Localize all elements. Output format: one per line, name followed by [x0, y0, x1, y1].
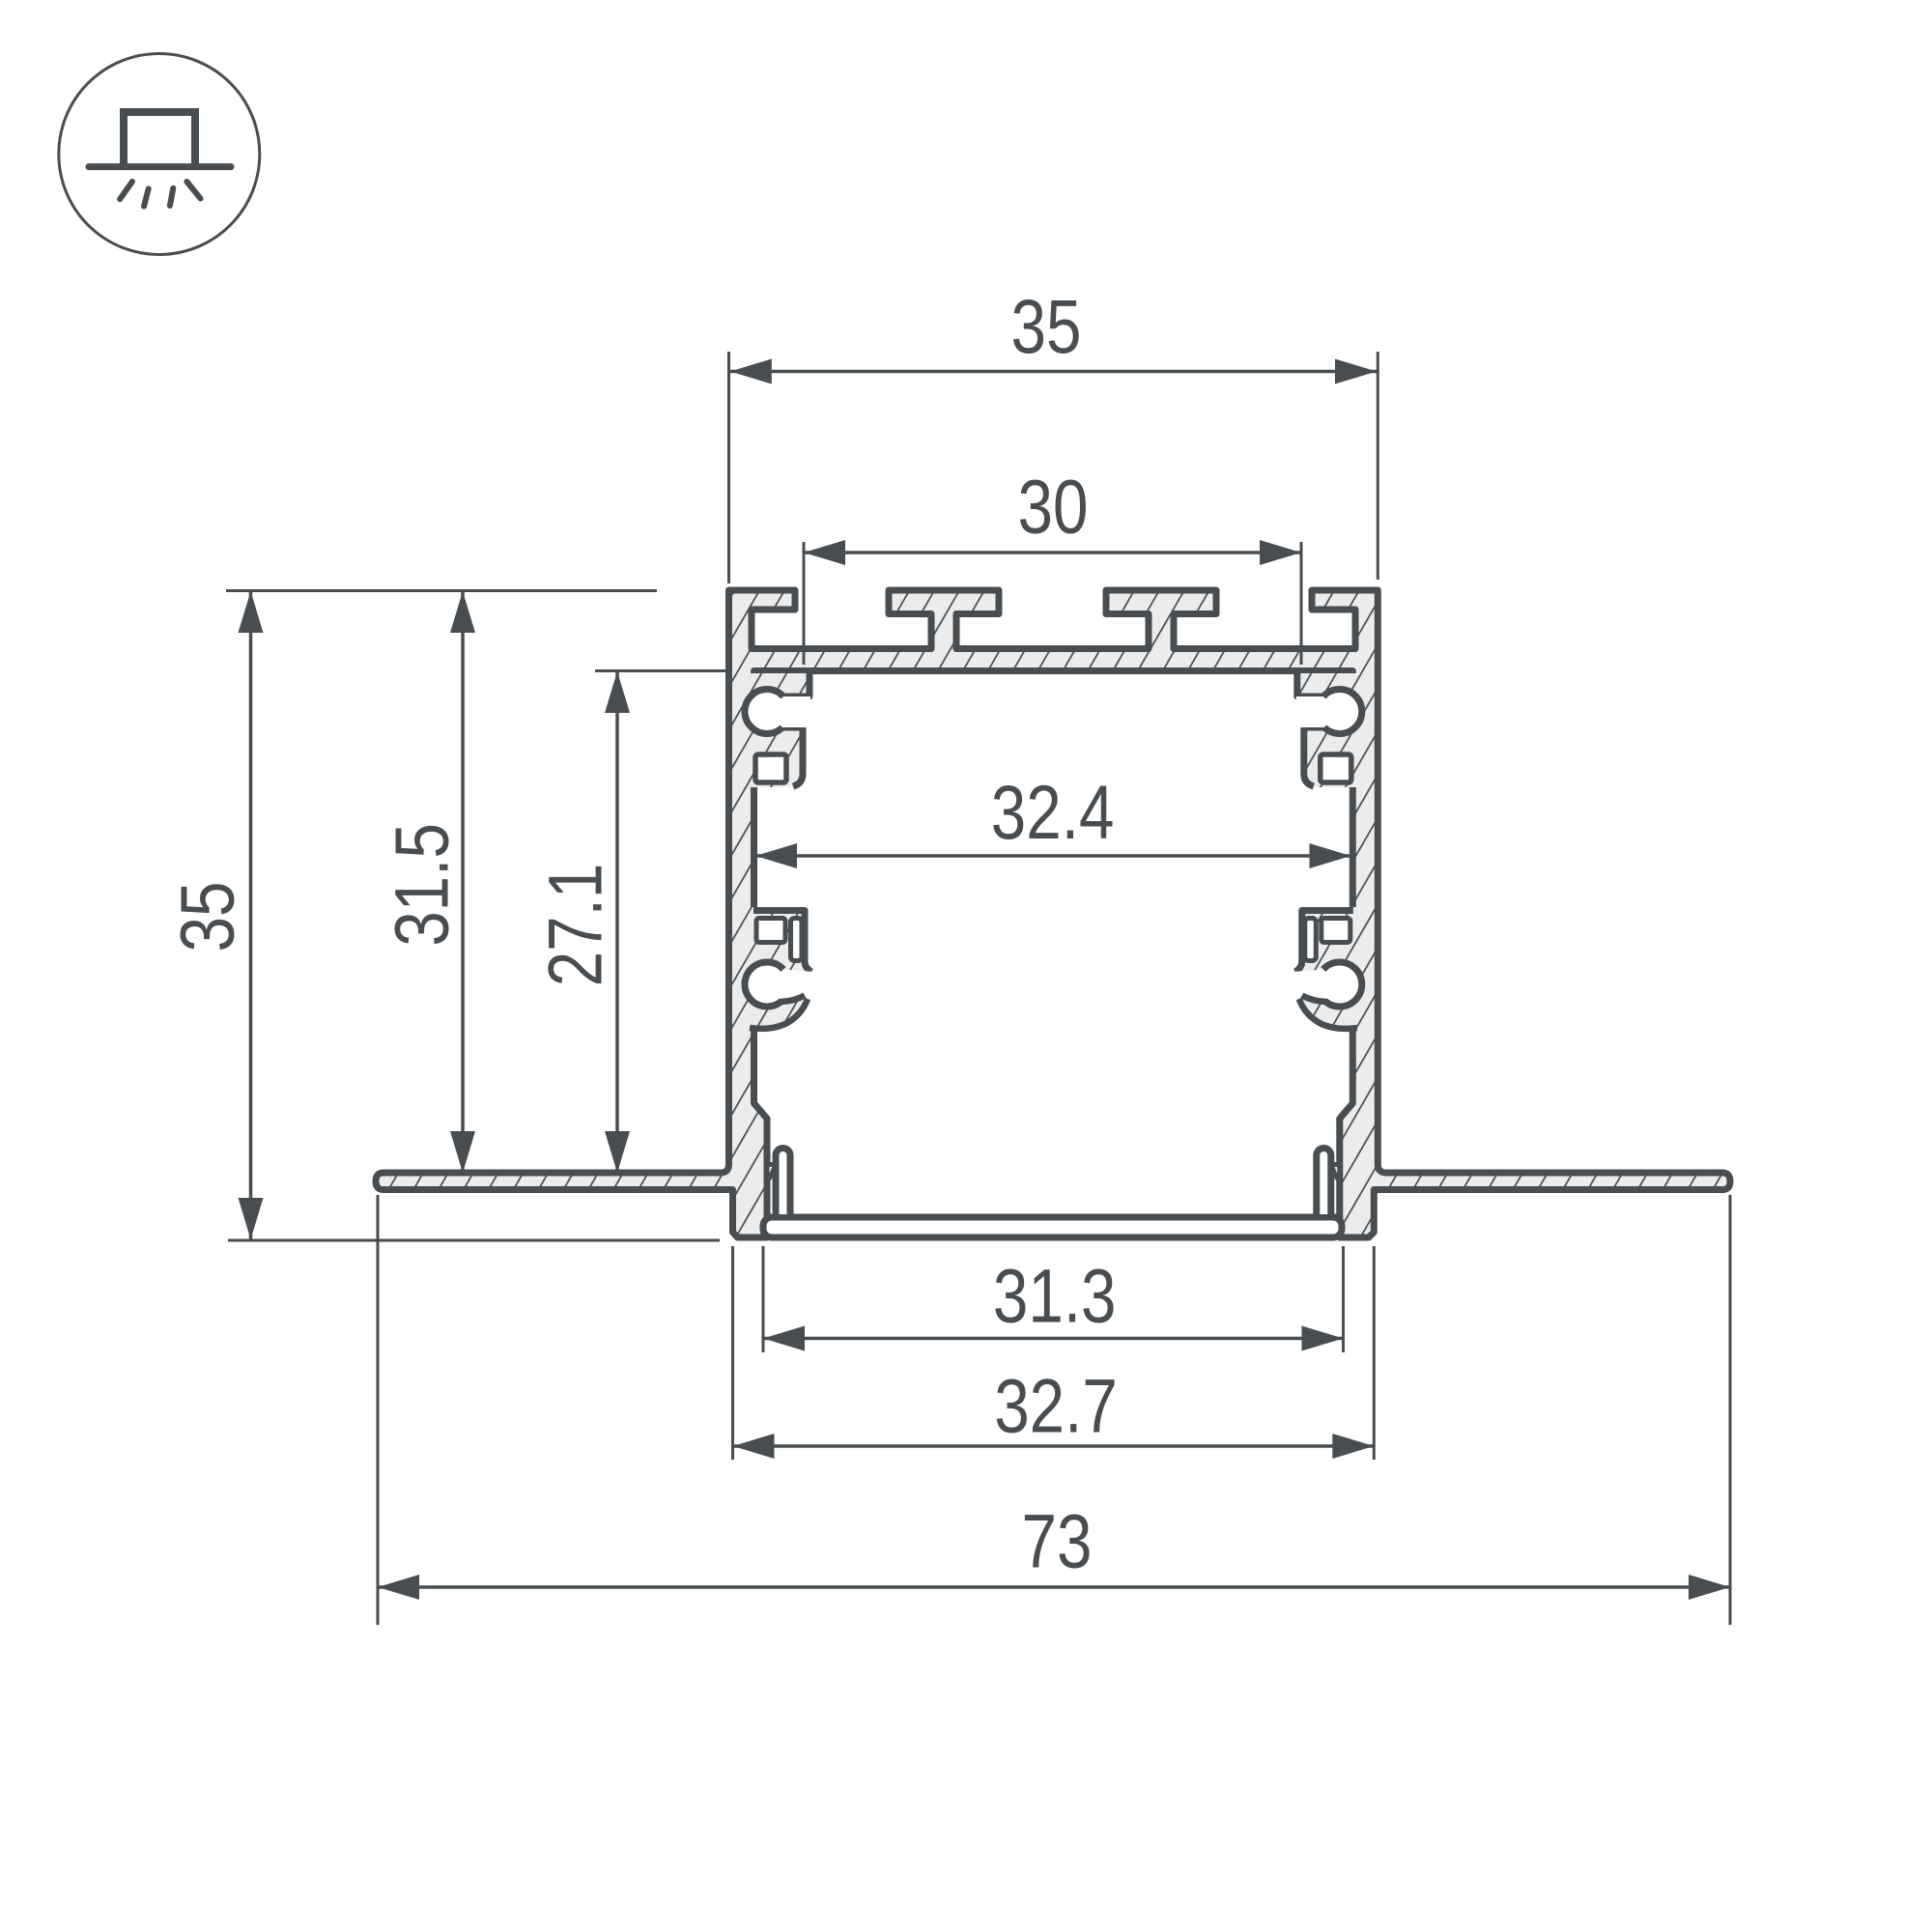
svg-text:32.4: 32.4: [991, 770, 1115, 855]
svg-text:31.3: 31.3: [993, 1254, 1117, 1339]
svg-text:35: 35: [1011, 284, 1082, 369]
svg-text:32.7: 32.7: [994, 1364, 1118, 1449]
svg-text:30: 30: [1018, 465, 1089, 550]
svg-text:27.1: 27.1: [533, 864, 618, 987]
svg-text:73: 73: [1022, 1499, 1093, 1584]
svg-text:31.5: 31.5: [380, 823, 465, 947]
svg-text:35: 35: [165, 882, 250, 952]
